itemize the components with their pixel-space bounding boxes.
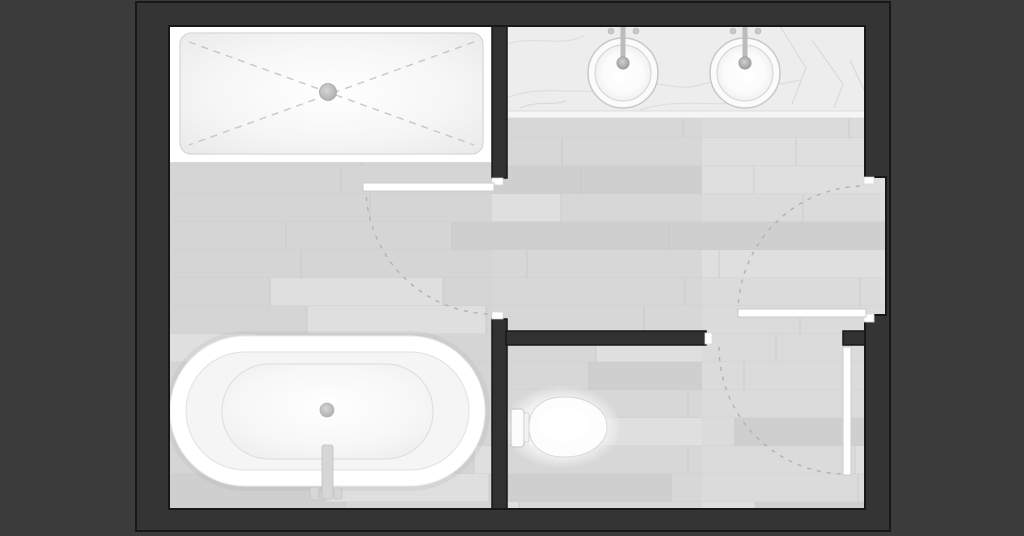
floor-plank-joint — [685, 278, 686, 306]
floor-plank — [169, 250, 301, 278]
floor-plank — [169, 166, 341, 194]
floor-plank-joint — [688, 446, 689, 474]
floor-plank — [301, 250, 492, 278]
floor-plank — [169, 278, 270, 306]
floor-plank — [671, 474, 702, 502]
faucet-right-spout — [739, 57, 751, 69]
faucet-left-handle-cold — [608, 28, 614, 34]
floor-plank — [169, 194, 370, 222]
floor-plan-stage — [0, 0, 1024, 536]
floor-plank — [589, 362, 702, 390]
jamb-wc-door-left — [705, 333, 712, 344]
faucet-left-handle-hot — [633, 28, 639, 34]
floor-plank-joint — [307, 306, 308, 334]
floor-plank-joint — [341, 166, 342, 194]
floor-plank — [702, 166, 754, 194]
bathtub — [165, 331, 490, 500]
wc-wall-stub — [843, 331, 867, 345]
floor-plank-joint — [489, 474, 490, 502]
partition-wall-lower — [492, 319, 507, 509]
toilet-bowl-highlight — [538, 408, 590, 442]
faucet-left-stem — [621, 22, 626, 62]
floor-plank — [719, 250, 886, 278]
floor-plank-joint — [719, 250, 720, 278]
floor-plank — [702, 334, 776, 362]
floor-plank — [860, 278, 886, 306]
floor-plank — [685, 278, 702, 306]
floor-plank-joint — [589, 362, 590, 390]
toilet-seat-hinge — [524, 413, 529, 442]
floor-plank-joint — [527, 250, 528, 278]
floor-plank — [702, 362, 744, 390]
floor-plank-joint — [644, 306, 645, 334]
floor-plank — [492, 474, 671, 502]
floor-plank — [492, 222, 669, 250]
bathtub-drain — [320, 403, 334, 417]
floor-plank — [688, 446, 702, 474]
floor-plank-joint — [286, 222, 287, 250]
floor-plank-joint — [735, 418, 736, 446]
floor-plank-joint — [562, 138, 563, 166]
floor-plank — [735, 418, 886, 446]
faucet-right-handle-cold — [730, 28, 736, 34]
floor-plank — [169, 306, 307, 334]
floor-plank-joint — [443, 278, 444, 306]
floor-plank — [370, 194, 492, 222]
wc-wall — [506, 331, 706, 345]
partition-wall-upper — [492, 24, 507, 178]
floor-plank-joint — [860, 278, 861, 306]
shower-enclosure — [169, 26, 492, 162]
floor-plank — [286, 222, 452, 250]
floor-plank-joint — [486, 306, 487, 334]
faucet-right-handle-hot — [755, 28, 761, 34]
floor-plank-joint — [561, 194, 562, 222]
counter-top — [506, 26, 865, 111]
floor-plank — [803, 194, 886, 222]
floor-plank-joint — [301, 250, 302, 278]
floor-plan-canvas — [0, 0, 1024, 536]
floor-plank — [443, 278, 492, 306]
floor-plank — [702, 390, 886, 418]
faucet-left-spout — [617, 57, 629, 69]
floor-plank — [702, 502, 755, 509]
floor-plank — [527, 250, 702, 278]
floor-plank — [702, 250, 719, 278]
vanity-counter — [506, 22, 865, 118]
floor-plank — [270, 278, 443, 306]
floor-plank-joint — [671, 474, 672, 502]
floor-plank — [345, 502, 492, 509]
floor-plank-joint — [858, 474, 859, 502]
floor-plank-joint — [270, 278, 271, 306]
faucet-right-stem — [743, 22, 748, 62]
floor-plank — [702, 222, 886, 250]
floor-plank — [561, 194, 702, 222]
floor-plank — [702, 474, 858, 502]
shower-drain — [320, 84, 337, 101]
wc-door-leaf — [843, 347, 851, 475]
floor-plank-joint — [581, 166, 582, 194]
floor-plank-joint — [776, 334, 777, 362]
floor-plank-joint — [688, 390, 689, 418]
floor-plank — [169, 222, 286, 250]
floor-plank-joint — [754, 166, 755, 194]
floor-plank — [702, 138, 796, 166]
toilet — [502, 385, 622, 469]
floor-plank-joint — [744, 362, 745, 390]
floor-plank-joint — [452, 222, 453, 250]
main-room-door-leaf — [363, 183, 494, 191]
floor-plank-joint — [669, 222, 670, 250]
counter-front-edge — [506, 111, 865, 118]
floor-plank — [702, 278, 860, 306]
floor-plank-joint — [755, 502, 756, 509]
floor-plank — [581, 166, 702, 194]
toilet-tank — [511, 409, 524, 447]
floor-plank-joint — [796, 138, 797, 166]
floor-plank-joint — [855, 446, 856, 474]
floor-plank — [169, 502, 345, 509]
floor-plank — [492, 250, 527, 278]
floor-plank — [519, 502, 702, 509]
floor-plank — [688, 390, 702, 418]
floor-plank — [702, 194, 803, 222]
floor-plank — [452, 222, 492, 250]
floor-plank-joint — [345, 502, 346, 509]
floor-plank — [486, 306, 492, 334]
floor-plank — [492, 194, 561, 222]
floor-plank — [702, 418, 735, 446]
floor-plank-joint — [803, 194, 804, 222]
floor-plank — [644, 306, 702, 334]
floor-plank — [307, 306, 486, 334]
floor-plank-joint — [519, 502, 520, 509]
floor-plank — [702, 446, 855, 474]
floor-plank — [669, 222, 702, 250]
entry-door-leaf — [738, 309, 866, 317]
jamb-entry-door-top — [864, 177, 874, 184]
floor-plank — [492, 278, 685, 306]
jamb-main-door-bottom — [492, 312, 503, 319]
floor-plank — [562, 138, 702, 166]
floor-plank — [492, 306, 644, 334]
